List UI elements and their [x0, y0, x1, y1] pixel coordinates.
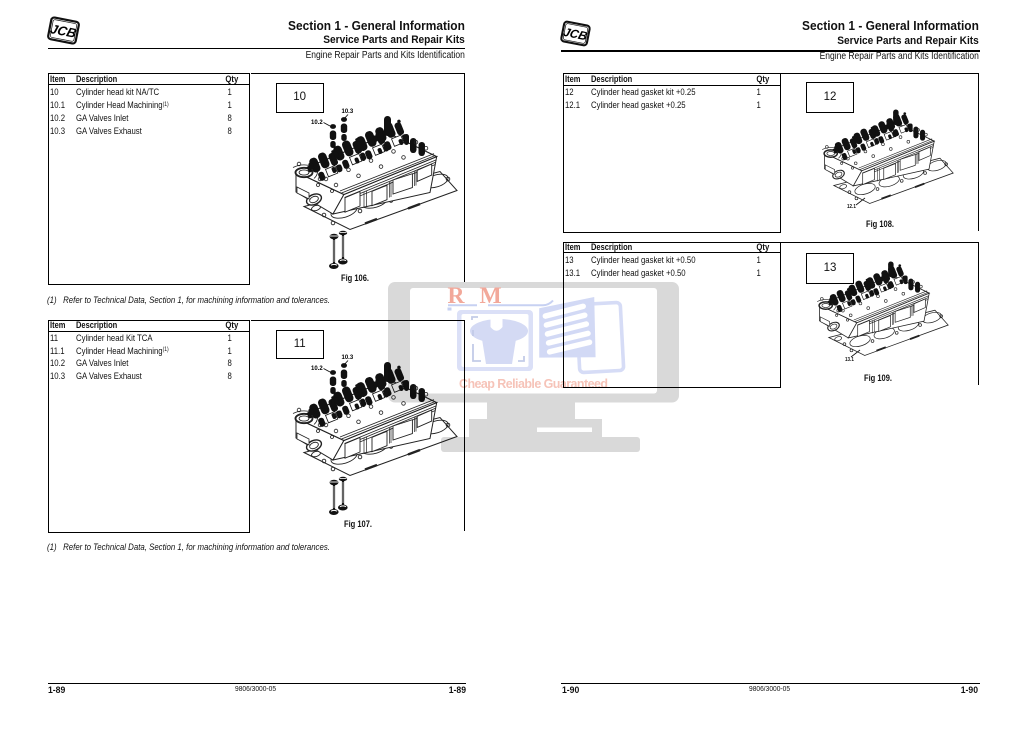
svg-text:RM: RM [448, 283, 517, 309]
